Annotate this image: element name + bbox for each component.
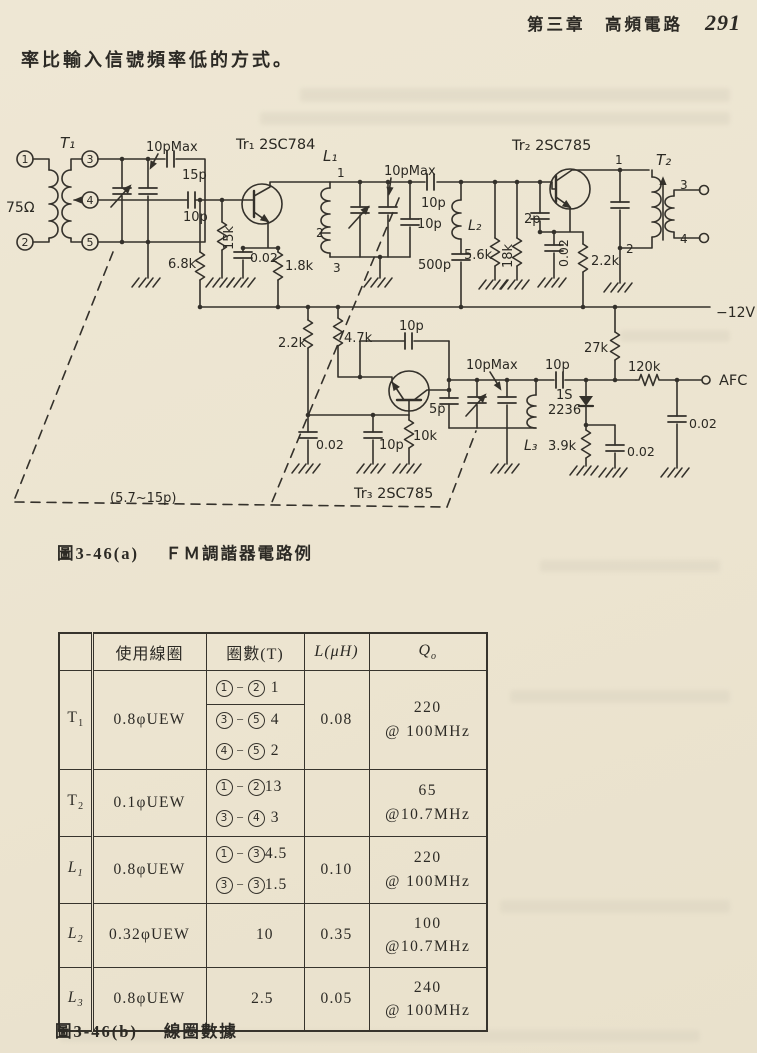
table-row-l1: L1 0.8φUEW 1−34.5 3−31.5 0.10 220@ 100MH…: [59, 836, 487, 903]
label-res-120k: 120k: [628, 360, 661, 375]
label-gang-range: (5.7~15p): [110, 491, 177, 506]
label-res-47k: 4.7k: [344, 331, 373, 346]
label-l1-tap1: 1: [337, 166, 345, 180]
terminal-1-label: 1: [22, 153, 29, 166]
row-turns: 10: [206, 903, 304, 967]
label-cap-10p-osc: 10p: [379, 438, 404, 453]
transformer-t2: [604, 170, 709, 292]
label-l1-tap2: 2: [316, 226, 324, 240]
label-tr2: Tr₂ 2SC785: [511, 138, 591, 154]
row-inductance: [304, 769, 369, 836]
label-res-22k-osc: 2.2k: [278, 336, 307, 351]
row-q: 240@ 100MHz: [369, 967, 487, 1031]
table-row-t2: T2 0.1φUEW 1−213 3−43 65@10.7MHz: [59, 769, 487, 836]
label-cap-10pmax-2: 10pMax: [384, 164, 436, 179]
label-cap-15p: 15p: [182, 168, 207, 183]
figure-b-caption: 圖3-46(b)線圈數據: [55, 1018, 238, 1042]
bleedthrough-smudge: [510, 690, 730, 703]
row-inductance: 0.10: [304, 836, 369, 903]
terminal-5-label: 5: [87, 236, 94, 249]
coil-data-table-wrap: 使用線圈 圈數(T) L(μH) Qo T1 0.8φUEW 1−21 3−54…: [58, 632, 488, 1032]
row-coil-wire: 0.1φUEW: [92, 769, 206, 836]
terminal-3-label: 3: [87, 153, 94, 166]
label-res-18k-2: 18k: [501, 243, 516, 268]
label-cap-002-diode: 0.02: [627, 444, 655, 459]
label-t1: T₁: [60, 134, 75, 152]
label-res-27k: 27k: [584, 341, 609, 356]
label-l1: L₁: [323, 147, 337, 165]
label-res-22k-tr2: 2.2k: [591, 254, 620, 269]
label-cap-10p-fb: 10p: [399, 319, 424, 334]
label-res-18k-1: 1.8k: [285, 259, 314, 274]
label-cap-10p-afc: 10p: [545, 358, 570, 373]
label-cap-10p-t1: 10p: [183, 210, 208, 225]
label-tr3: Tr₃ 2SC785: [353, 486, 433, 502]
label-cap-10pmax-1: 10pMax: [146, 140, 198, 155]
row-coil-wire: 0.8φUEW: [92, 670, 206, 769]
label-diode-1s: 1S: [556, 388, 573, 403]
header-turns: 圈數(T): [206, 633, 304, 670]
row-turns: 1−34.5 3−31.5: [206, 836, 304, 903]
label-res-10k: 10k: [413, 429, 438, 444]
label-res-39k: 3.9k: [548, 439, 577, 454]
book-page: { "page": { "header": { "chapter_title":…: [0, 0, 757, 1053]
table-header-row: 使用線圈 圈數(T) L(μH) Qo: [59, 633, 487, 670]
label-cap-2p: 2p: [524, 212, 541, 227]
terminal-4-label: 4: [87, 194, 94, 207]
label-l3: L₃: [524, 438, 538, 454]
label-cap-002-afc: 0.02: [689, 416, 717, 431]
label-afc: AFC: [719, 373, 747, 389]
coil-data-table: 使用線圈 圈數(T) L(μH) Qo T1 0.8φUEW 1−21 3−54…: [58, 632, 488, 1032]
header-q: Qo: [369, 633, 487, 670]
row-q: 100@10.7MHz: [369, 903, 487, 967]
label-tr1: Tr₁ 2SC784: [235, 137, 315, 153]
label-input-impedance: 75Ω: [6, 200, 35, 216]
row-coil-wire: 0.8φUEW: [92, 836, 206, 903]
label-cap-002-osc: 0.02: [316, 437, 344, 452]
label-cap-10p-series: 10p: [421, 196, 446, 211]
transistor-tr2: [540, 169, 649, 232]
label-diode-2236: 2236: [548, 403, 581, 418]
row-name: L2: [59, 903, 92, 967]
row-coil-wire: 0.32φUEW: [92, 903, 206, 967]
label-cap-002-2: 0.02: [556, 239, 571, 267]
header-coil: 使用線圈: [92, 633, 206, 670]
row-name: T2: [59, 769, 92, 836]
label-res-68k: 6.8k: [168, 257, 197, 272]
label-t2-tap3: 3: [680, 178, 688, 192]
bleedthrough-smudge: [500, 900, 730, 913]
row-q: 65@10.7MHz: [369, 769, 487, 836]
figure-a-caption: 圖3-46(a)ＦＭ調諧器電路例: [57, 540, 313, 564]
row-q: 220@ 100MHz: [369, 836, 487, 903]
row-name: T1: [59, 670, 92, 769]
row-turns: 1−213 3−43: [206, 769, 304, 836]
row-inductance: 0.05: [304, 967, 369, 1031]
transformer-t1: [33, 159, 82, 242]
label-res-15k: 15k: [222, 225, 237, 250]
header-name: [59, 633, 92, 670]
label-cap-10pmax-3: 10pMax: [466, 358, 518, 373]
label-t2-tap2: 2: [626, 242, 634, 256]
label-t2: T₂: [656, 151, 671, 169]
fm-tuner-circuit-diagram: 1234575ΩT₁10pMax15p10pTr₁ 2SC7846.8k15k0…: [0, 0, 757, 560]
bleedthrough-smudge: [540, 560, 720, 572]
label-t2-tap4: 4: [680, 232, 688, 246]
label-cap-10p-shunt: 10p: [417, 217, 442, 232]
label-cap-500p: 500p: [418, 258, 451, 273]
figure-b-title: 線圈數據: [164, 1022, 238, 1041]
label-res-56k: 5.6k: [464, 248, 493, 263]
table-row-t1: T1 0.8φUEW 1−21 3−54 4−52 0.08 220@ 100M…: [59, 670, 487, 769]
label-supply: −12V: [716, 305, 756, 321]
row-inductance: 0.35: [304, 903, 369, 967]
row-inductance: 0.08: [304, 670, 369, 769]
tuning-gang-dashed-link: [15, 198, 476, 507]
label-l1-tap3: 3: [333, 261, 341, 275]
figure-a-title: ＦＭ調諧器電路例: [165, 544, 313, 563]
table-row-l2: L2 0.32φUEW 10 0.35 100@10.7MHz: [59, 903, 487, 967]
label-cap-002-1: 0.02: [250, 250, 278, 265]
figure-b-label: 圖3-46(b): [55, 1022, 138, 1041]
figure-a-label: 圖3-46(a): [57, 544, 139, 563]
circuit-labels: 1234575ΩT₁10pMax15p10pTr₁ 2SC7846.8k15k0…: [6, 134, 756, 506]
terminal-2-label: 2: [22, 236, 29, 249]
label-l2: L₂: [468, 218, 482, 234]
row-q: 220@ 100MHz: [369, 670, 487, 769]
row-turns: 1−21 3−54 4−52: [206, 670, 304, 769]
row-name: L1: [59, 836, 92, 903]
label-t2-tap1: 1: [615, 153, 623, 167]
label-cap-5p: 5p: [429, 402, 446, 417]
header-inductance: L(μH): [304, 633, 369, 670]
